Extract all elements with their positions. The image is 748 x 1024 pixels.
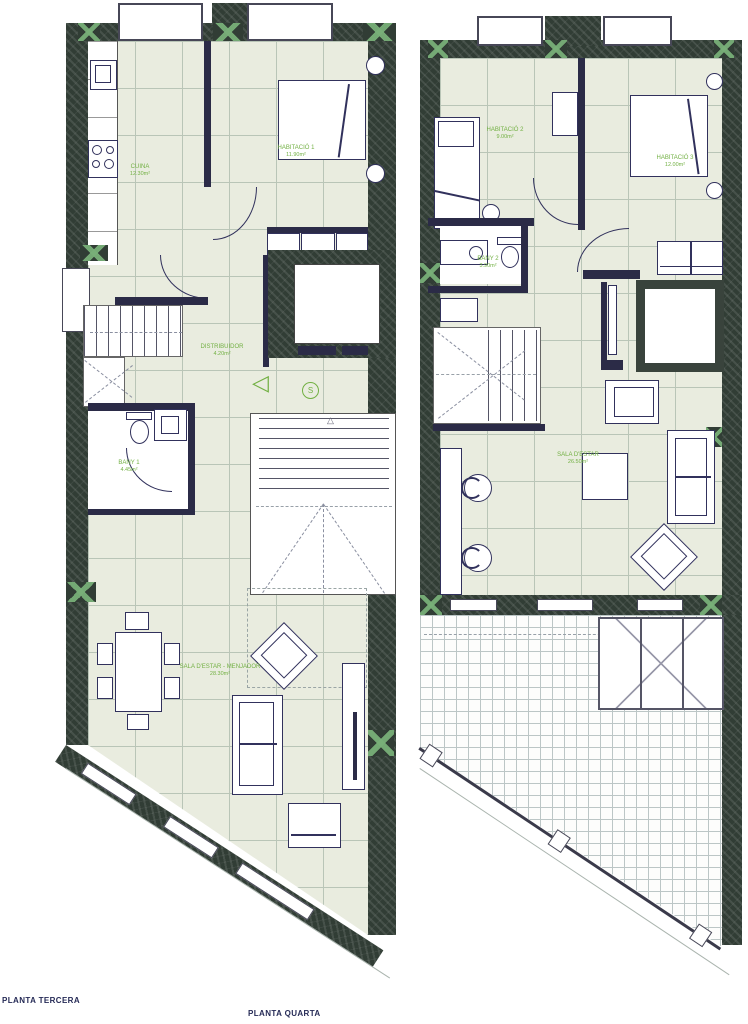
pillar (545, 40, 567, 58)
desk (440, 448, 462, 595)
toilet-tank (497, 237, 522, 245)
plan-title-tercera: PLANTA TERCERA (2, 996, 80, 1005)
plan-quarta: HABITACIÓ 29.00m² HABITACIÓ 312.00m² BAN… (0, 0, 748, 1024)
window (537, 599, 593, 611)
pillar (420, 263, 440, 283)
wall-bedroom3-bottom (583, 270, 640, 279)
elevator-shaft (636, 280, 724, 372)
pillar (428, 40, 448, 58)
elevator-door (608, 285, 617, 355)
pillar (420, 595, 442, 615)
window (450, 599, 497, 611)
bay-window (603, 16, 672, 46)
stool (464, 544, 492, 572)
duct (552, 92, 578, 136)
stool (464, 474, 492, 502)
window (637, 599, 683, 611)
room-label-sala2: SALA D'ESTAR26.50m² (548, 452, 608, 466)
wardrobe (657, 241, 723, 275)
nightstand (706, 73, 723, 90)
wall-bath2-bottom (428, 286, 528, 293)
skylight (598, 617, 724, 710)
sofa (667, 430, 715, 524)
wall-bedroom2-bottom (428, 218, 534, 226)
wall-elevator-left (601, 282, 607, 362)
wall-stair-bottom (433, 424, 545, 431)
elevator-sill (601, 360, 623, 370)
wall-right (722, 40, 742, 945)
room-label-bany2: BANY 23.90m² (468, 256, 508, 270)
bay-window (477, 16, 543, 46)
pillar (714, 40, 734, 58)
shower (440, 298, 478, 322)
bed-single (434, 117, 480, 229)
wall-bath2-right (521, 226, 528, 293)
pillar (700, 595, 722, 615)
partition-bedrooms (578, 58, 585, 230)
armchair (605, 380, 659, 424)
stair-flight (433, 327, 541, 424)
room-label-habitacio3: HABITACIÓ 312.00m² (645, 155, 705, 169)
nightstand (706, 182, 723, 199)
wall-terrace (420, 595, 742, 615)
floorplan-sheet: ◁ S △ (0, 0, 748, 1024)
plan-title-quarta: PLANTA QUARTA (248, 1009, 321, 1018)
room-label-habitacio2: HABITACIÓ 29.00m² (475, 127, 535, 141)
